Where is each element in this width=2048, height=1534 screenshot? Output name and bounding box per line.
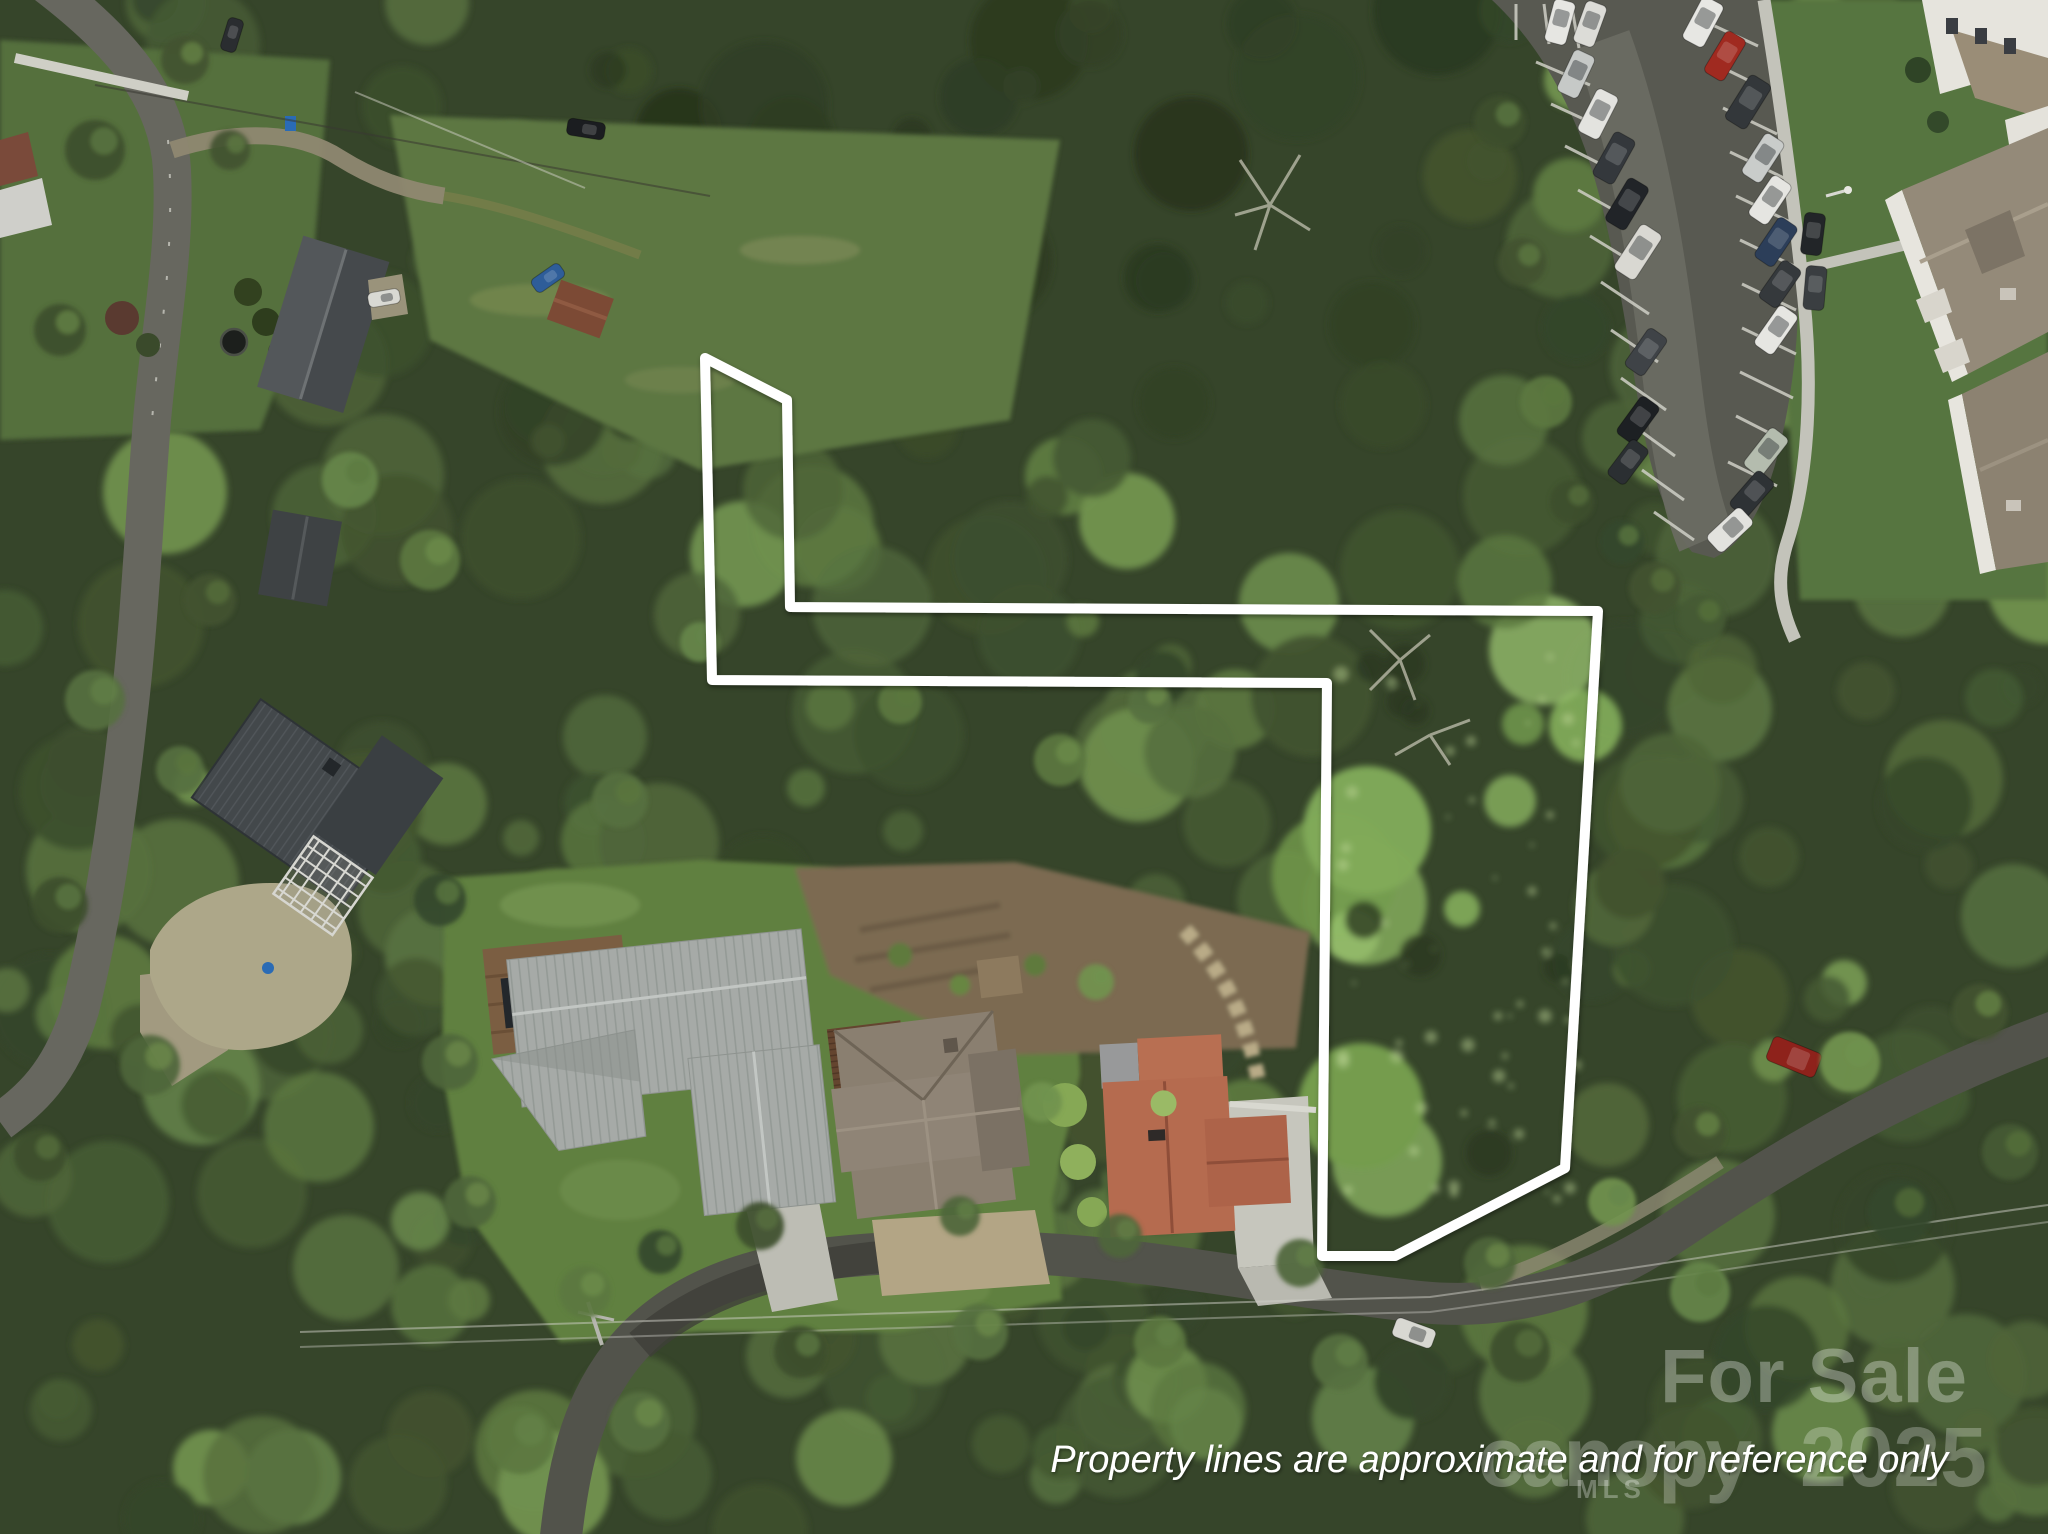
overhang-tree-highlight bbox=[181, 42, 203, 64]
canopy-highlight bbox=[1432, 1185, 1441, 1194]
tree-canopy-blob bbox=[293, 1215, 399, 1321]
overhang-tree-highlight bbox=[897, 686, 917, 706]
tree-canopy-blob bbox=[503, 820, 539, 856]
canopy-highlight bbox=[1334, 667, 1348, 681]
tree-canopy-blob bbox=[972, 1415, 1030, 1473]
overhang-tree-highlight bbox=[636, 1400, 663, 1427]
shrub bbox=[1927, 111, 1949, 133]
overhang-tree-highlight bbox=[446, 1041, 471, 1066]
skylight bbox=[1148, 1129, 1166, 1141]
canopy-highlight bbox=[1530, 843, 1534, 847]
for-sale-watermark: For Sale bbox=[1660, 1334, 1968, 1419]
meadow-grass-patch bbox=[740, 236, 860, 264]
red-bush bbox=[105, 301, 139, 335]
tree-canopy-blob bbox=[1804, 976, 1850, 1022]
tree-canopy-blob bbox=[461, 479, 581, 599]
tree-canopy-blob bbox=[1026, 476, 1068, 518]
tree-canopy-blob bbox=[1878, 757, 1972, 851]
canopy-highlight bbox=[1545, 1190, 1549, 1194]
tree-canopy-blob bbox=[883, 811, 923, 851]
overhang-tree-highlight bbox=[1117, 1220, 1137, 1240]
shrub bbox=[1905, 57, 1931, 83]
garden-shed bbox=[977, 955, 1023, 998]
overhang-tree-highlight bbox=[1569, 486, 1589, 506]
overhang-tree-highlight bbox=[56, 884, 81, 909]
canopy-highlight bbox=[1493, 876, 1497, 880]
overhang-tree-highlight bbox=[1336, 1341, 1361, 1366]
canopy-highlight bbox=[1573, 740, 1580, 747]
condo-window bbox=[1975, 28, 1987, 44]
tree-canopy-blob bbox=[1234, 14, 1360, 140]
canopy-highlight bbox=[1461, 1038, 1474, 1051]
shed-dark bbox=[258, 510, 342, 607]
overhang-tree-highlight bbox=[1296, 1245, 1318, 1267]
overhang-tree-highlight bbox=[176, 752, 198, 774]
tree-canopy-blob bbox=[1138, 367, 1210, 439]
canopy-highlight bbox=[1352, 981, 1356, 985]
canopy-shadow bbox=[1544, 954, 1572, 982]
overhang-tree-highlight bbox=[56, 311, 79, 334]
blue-barrel bbox=[262, 962, 274, 974]
overhang-tree-highlight bbox=[1696, 1113, 1719, 1136]
roof-vent bbox=[2006, 500, 2021, 511]
lawn-patch bbox=[560, 1160, 680, 1220]
canopy-highlight bbox=[1514, 1129, 1525, 1140]
tree-canopy-blob bbox=[1484, 775, 1536, 827]
chimney bbox=[943, 1038, 959, 1054]
overhang-tree-highlight bbox=[346, 459, 371, 484]
overhang-tree-highlight bbox=[36, 1136, 59, 1159]
overhang-tree-highlight bbox=[206, 581, 229, 604]
aerial-photo-canvas: For Sale canopy 2025 MLS Property lines … bbox=[0, 0, 2048, 1534]
overhang-tree-highlight bbox=[91, 128, 118, 155]
garden-plant bbox=[1024, 954, 1046, 976]
canopy-highlight bbox=[1346, 786, 1358, 798]
tree-canopy-blob bbox=[72, 1319, 124, 1371]
overhang-tree-highlight bbox=[657, 1236, 677, 1256]
canopy-highlight bbox=[1508, 1014, 1512, 1018]
overhang-tree-highlight bbox=[1516, 1330, 1543, 1357]
overhang-tree-highlight bbox=[1486, 1244, 1509, 1267]
tree-canopy-blob bbox=[1057, 1, 1123, 67]
tree-canopy-blob bbox=[1739, 827, 1799, 887]
tree-canopy-blob bbox=[1965, 669, 2023, 727]
bush bbox=[136, 333, 160, 357]
tree-canopy-blob bbox=[391, 1192, 449, 1250]
property-disclaimer-text: Property lines are approximate and for r… bbox=[1050, 1439, 1950, 1481]
canopy-highlight bbox=[1425, 1031, 1438, 1044]
hedge bbox=[234, 278, 262, 306]
canopy-highlight bbox=[1562, 713, 1574, 725]
canopy-highlight bbox=[1337, 1050, 1349, 1062]
tree-canopy-blob bbox=[563, 695, 647, 779]
canopy-highlight bbox=[1549, 922, 1556, 929]
overhang-tree-highlight bbox=[1698, 600, 1720, 622]
overhang-tree-highlight bbox=[91, 678, 118, 705]
tree-canopy-blob bbox=[1063, 1304, 1109, 1350]
condo-window bbox=[1946, 18, 1958, 34]
tree-canopy-blob bbox=[1340, 362, 1426, 448]
garden-plant bbox=[888, 943, 912, 967]
canopy-highlight bbox=[1390, 1049, 1403, 1062]
garden-plant bbox=[950, 975, 970, 995]
overhang-tree-highlight bbox=[1619, 526, 1639, 546]
tree-canopy-blob bbox=[806, 682, 854, 730]
canopy-highlight bbox=[1564, 1182, 1576, 1194]
tree-canopy-blob bbox=[1687, 634, 1757, 704]
tree-canopy-blob bbox=[1837, 662, 1895, 720]
overhang-tree-highlight bbox=[756, 1208, 778, 1230]
canopy-highlight bbox=[1341, 843, 1351, 853]
tree-canopy-blob bbox=[1251, 635, 1373, 757]
tree-canopy-blob bbox=[1134, 97, 1248, 211]
tree-canopy-blob bbox=[1620, 733, 1720, 833]
overhang-tree-highlight bbox=[227, 135, 245, 153]
canopy-highlight bbox=[1416, 1102, 1428, 1114]
overhang-tree-highlight bbox=[1542, 383, 1565, 406]
overhang-tree-highlight bbox=[957, 1201, 975, 1219]
tree-canopy-blob bbox=[1226, 282, 1268, 324]
canopy-highlight bbox=[1494, 1012, 1503, 1021]
overhang-tree-highlight bbox=[1608, 1184, 1630, 1206]
tree-canopy-blob bbox=[978, 584, 1080, 686]
overhang-tree-highlight bbox=[976, 1311, 1001, 1336]
tree-canopy-blob bbox=[1444, 891, 1480, 927]
tree-canopy-blob bbox=[1565, 1083, 1649, 1167]
canopy-highlight bbox=[1538, 1009, 1552, 1023]
tree-canopy-blob bbox=[264, 1072, 374, 1182]
tree-canopy-blob bbox=[796, 1410, 892, 1506]
canopy-shadow bbox=[1345, 901, 1383, 939]
trash-bin-blue bbox=[285, 116, 296, 131]
canopy-highlight bbox=[1450, 1189, 1459, 1198]
tree-canopy-blob bbox=[203, 1416, 321, 1534]
overhang-tree-highlight bbox=[1976, 991, 2001, 1016]
tree-canopy-blob bbox=[1124, 244, 1192, 312]
overhang-tree-highlight bbox=[1039, 1087, 1057, 1105]
tree-canopy-blob bbox=[1329, 282, 1415, 368]
overhang-tree-highlight bbox=[2006, 1131, 2031, 1156]
canopy-highlight bbox=[1526, 721, 1530, 725]
tree-canopy-blob bbox=[1542, 294, 1610, 362]
canopy-highlight bbox=[1445, 746, 1455, 756]
tree-canopy-blob bbox=[1003, 68, 1039, 104]
tree-canopy-blob bbox=[1376, 226, 1426, 276]
canopy-highlight bbox=[1395, 1039, 1402, 1046]
tree-canopy-blob bbox=[448, 1279, 490, 1321]
tree-canopy-blob bbox=[1502, 703, 1544, 745]
canopy-shadow bbox=[1399, 934, 1441, 976]
tree-canopy-blob bbox=[1374, 1344, 1450, 1420]
canopy-highlight bbox=[1466, 736, 1476, 746]
canopy-shadow bbox=[1466, 1130, 1512, 1176]
meadow-grass-patch bbox=[625, 367, 735, 393]
lawn-patch bbox=[500, 883, 640, 927]
trampoline bbox=[221, 329, 247, 355]
canopy-highlight bbox=[1469, 797, 1475, 803]
canopy-highlight bbox=[1461, 1110, 1468, 1117]
tree-canopy-blob bbox=[181, 1070, 251, 1140]
overhang-tree-highlight bbox=[1056, 741, 1079, 764]
canopy-highlight bbox=[1516, 1000, 1523, 1007]
canopy-highlight bbox=[1502, 1053, 1508, 1059]
tree-canopy-blob bbox=[349, 1435, 447, 1533]
overhang-tree-highlight bbox=[466, 1183, 489, 1206]
overhang-tree-highlight bbox=[1093, 969, 1109, 985]
tree-canopy-blob bbox=[787, 769, 825, 807]
canopy-highlight bbox=[1546, 811, 1554, 819]
overhang-tree-highlight bbox=[146, 1043, 173, 1070]
overhang-tree-highlight bbox=[426, 538, 453, 565]
overhang-tree-highlight bbox=[581, 1273, 604, 1296]
overhang-tree-highlight bbox=[796, 1333, 819, 1356]
aerial-property-photo: For Sale canopy 2025 MLS Property lines … bbox=[0, 0, 2048, 1534]
parked-car bbox=[1803, 265, 1828, 311]
parked-car bbox=[1800, 212, 1826, 256]
overhang-tree-highlight bbox=[1651, 569, 1674, 592]
tree-canopy-blob bbox=[1053, 419, 1131, 497]
canopy-highlight bbox=[1547, 654, 1554, 661]
tree-canopy-blob bbox=[531, 424, 565, 458]
canopy-highlight bbox=[1539, 697, 1546, 704]
canopy-highlight bbox=[1542, 948, 1550, 956]
tree-canopy-blob bbox=[590, 52, 626, 88]
overhang-tree-highlight bbox=[436, 881, 459, 904]
overhang-tree-highlight bbox=[1895, 1188, 1924, 1217]
tree-canopy-blob bbox=[1298, 1043, 1424, 1169]
overhang-tree-highlight bbox=[1147, 686, 1167, 706]
tree-canopy-blob bbox=[30, 1379, 92, 1441]
tree-canopy-blob bbox=[940, 58, 1018, 136]
overhang-tree-highlight bbox=[1156, 1323, 1179, 1346]
condo-window bbox=[2004, 38, 2016, 54]
overhang-tree-highlight bbox=[515, 1415, 546, 1446]
overhang-tree-highlight bbox=[1846, 1040, 1873, 1067]
tree-canopy-blob bbox=[1595, 849, 1665, 919]
canopy-highlight bbox=[1409, 1146, 1419, 1156]
canopy-highlight bbox=[1446, 815, 1450, 819]
canopy-highlight bbox=[1337, 859, 1348, 870]
overhang-tree-highlight bbox=[1696, 1270, 1723, 1297]
overhang-tree-highlight bbox=[1518, 244, 1540, 266]
canopy-highlight bbox=[1508, 1083, 1514, 1089]
bright-shrub bbox=[1060, 1144, 1096, 1180]
overhang-tree-highlight bbox=[616, 779, 641, 804]
canopy-highlight bbox=[1493, 1070, 1506, 1083]
canopy-highlight bbox=[1553, 1195, 1561, 1203]
bright-shrub bbox=[1077, 1197, 1107, 1227]
canopy-highlight bbox=[1527, 886, 1536, 895]
canopy-highlight bbox=[1343, 1185, 1353, 1195]
canopy-highlight bbox=[1488, 1119, 1495, 1126]
overhang-tree-highlight bbox=[1496, 103, 1519, 126]
roof-vent bbox=[2000, 288, 2016, 300]
